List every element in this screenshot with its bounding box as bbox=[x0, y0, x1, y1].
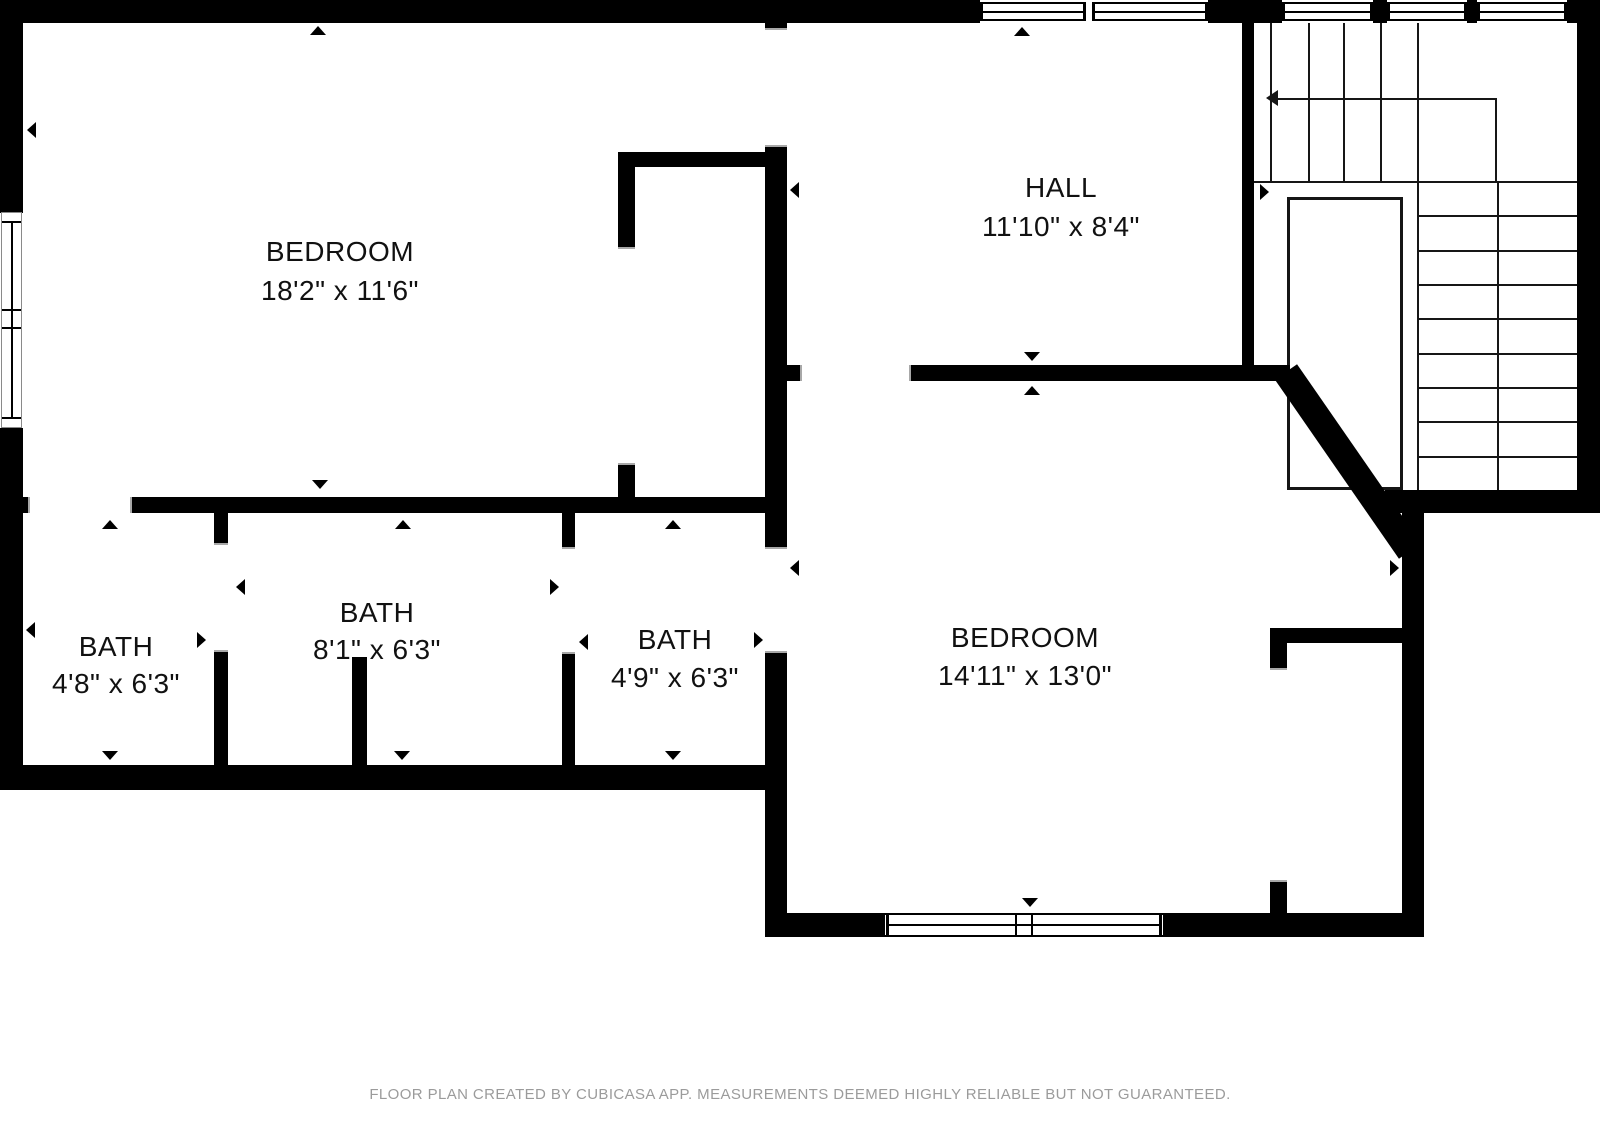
room-dimensions-bath-3: 4'9" x 6'3" bbox=[611, 662, 739, 694]
door-opening bbox=[214, 543, 228, 652]
wall-segment bbox=[911, 365, 1290, 381]
stair-direction-line bbox=[1278, 98, 1497, 100]
direction-marker-icon bbox=[395, 520, 411, 529]
direction-marker-icon bbox=[102, 751, 118, 760]
wall-segment bbox=[1467, 0, 1477, 23]
window bbox=[1282, 2, 1373, 21]
direction-marker-icon bbox=[790, 182, 799, 198]
window-center-line bbox=[1480, 11, 1564, 13]
stair-tread-line bbox=[1343, 23, 1345, 181]
room-dimensions-bedroom-1: 18'2" x 11'6" bbox=[261, 275, 419, 307]
stair-tread-line bbox=[1417, 353, 1577, 355]
window bbox=[1, 212, 22, 428]
direction-marker-icon bbox=[1024, 352, 1040, 361]
stair-direction-arrow-icon bbox=[1266, 90, 1278, 106]
wall-segment bbox=[1208, 0, 1282, 23]
direction-marker-icon bbox=[310, 26, 326, 35]
room-label-bath-1: BATH bbox=[79, 631, 154, 663]
window-center-line bbox=[11, 222, 13, 418]
wall-segment bbox=[765, 653, 787, 937]
footer-disclaimer: FLOOR PLAN CREATED BY CUBICASA APP. MEAS… bbox=[0, 1086, 1600, 1103]
wall-segment bbox=[1270, 628, 1403, 643]
window-center-line bbox=[888, 924, 1161, 926]
window-center-line bbox=[1285, 11, 1370, 13]
stair-direction-line bbox=[1495, 98, 1497, 181]
wall-segment bbox=[132, 497, 787, 513]
door-opening bbox=[765, 547, 787, 653]
window-center-line bbox=[1095, 11, 1205, 13]
room-dimensions-bedroom-2: 14'11" x 13'0" bbox=[938, 660, 1112, 692]
direction-marker-icon bbox=[1014, 27, 1030, 36]
door-opening bbox=[765, 28, 787, 147]
wall-segment bbox=[214, 513, 228, 543]
stair-tread-line bbox=[1254, 181, 1577, 183]
wall-segment bbox=[787, 365, 800, 381]
room-label-bedroom-1: BEDROOM bbox=[266, 236, 414, 268]
door-opening bbox=[562, 547, 575, 654]
stair-tread-line bbox=[1380, 23, 1382, 181]
stair-tread-line bbox=[1417, 456, 1577, 458]
wall-segment bbox=[1402, 510, 1424, 937]
stair-tread-line bbox=[1417, 387, 1577, 389]
wall-segment bbox=[0, 0, 23, 213]
direction-marker-icon bbox=[754, 632, 763, 648]
room-label-bath-3: BATH bbox=[638, 624, 713, 656]
door-opening bbox=[800, 365, 911, 381]
direction-marker-icon bbox=[579, 634, 588, 650]
wall-segment bbox=[562, 654, 575, 765]
direction-marker-icon bbox=[1390, 560, 1399, 576]
window-center-line bbox=[1390, 11, 1464, 13]
room-dimensions-hall: 11'10" x 8'4" bbox=[982, 211, 1140, 243]
wall-segment bbox=[352, 657, 367, 765]
window bbox=[1092, 2, 1208, 21]
window bbox=[1387, 2, 1467, 21]
window bbox=[883, 913, 1165, 937]
wall-segment bbox=[0, 0, 980, 23]
direction-marker-icon bbox=[312, 480, 328, 489]
room-dimensions-bath-2: 8'1" x 6'3" bbox=[313, 634, 441, 666]
wall-segment bbox=[1373, 0, 1387, 23]
door-opening bbox=[1270, 668, 1287, 882]
direction-marker-icon bbox=[26, 622, 35, 638]
room-label-bath-2: BATH bbox=[340, 597, 415, 629]
stair-tread-line bbox=[1308, 23, 1310, 181]
stair-tread-line bbox=[1417, 250, 1577, 252]
wall-segment bbox=[0, 765, 787, 790]
wall-segment bbox=[618, 152, 787, 167]
direction-marker-icon bbox=[394, 751, 410, 760]
direction-marker-icon bbox=[550, 579, 559, 595]
wall-segment bbox=[765, 147, 787, 547]
window bbox=[1477, 2, 1567, 21]
window-center-line bbox=[983, 11, 1083, 13]
stair-tread-line bbox=[1497, 181, 1499, 490]
wall-segment bbox=[0, 428, 23, 790]
wall-segment bbox=[618, 152, 635, 247]
room-dimensions-bath-1: 4'8" x 6'3" bbox=[52, 668, 180, 700]
wall-segment bbox=[1577, 0, 1600, 513]
stair-tread-line bbox=[1417, 23, 1419, 490]
door-opening bbox=[28, 497, 132, 513]
direction-marker-icon bbox=[665, 751, 681, 760]
wall-segment bbox=[1242, 23, 1254, 365]
direction-marker-icon bbox=[1260, 184, 1269, 200]
direction-marker-icon bbox=[1022, 898, 1038, 907]
door-opening bbox=[618, 247, 635, 465]
wall-segment bbox=[618, 465, 635, 513]
wall-segment bbox=[1270, 628, 1287, 668]
stair-tread-line bbox=[1417, 284, 1577, 286]
wall-segment bbox=[562, 513, 575, 547]
direction-marker-icon bbox=[790, 560, 799, 576]
window bbox=[980, 2, 1086, 21]
wall-segment bbox=[214, 652, 228, 765]
wall-segment bbox=[765, 913, 883, 937]
stair-tread-line bbox=[1417, 318, 1577, 320]
wall-segment bbox=[1270, 882, 1287, 913]
direction-marker-icon bbox=[1024, 386, 1040, 395]
direction-marker-icon bbox=[236, 579, 245, 595]
direction-marker-icon bbox=[197, 632, 206, 648]
room-label-hall: HALL bbox=[1025, 172, 1097, 204]
wall-segment bbox=[1165, 913, 1424, 937]
wall-segment bbox=[0, 497, 28, 513]
room-label-bedroom-2: BEDROOM bbox=[951, 622, 1099, 654]
direction-marker-icon bbox=[102, 520, 118, 529]
direction-marker-icon bbox=[27, 122, 36, 138]
stair-tread-line bbox=[1417, 215, 1577, 217]
floor-plan: BEDROOM18'2" x 11'6"HALL11'10" x 8'4"BAT… bbox=[0, 0, 1600, 1121]
stair-tread-line bbox=[1417, 421, 1577, 423]
direction-marker-icon bbox=[665, 520, 681, 529]
